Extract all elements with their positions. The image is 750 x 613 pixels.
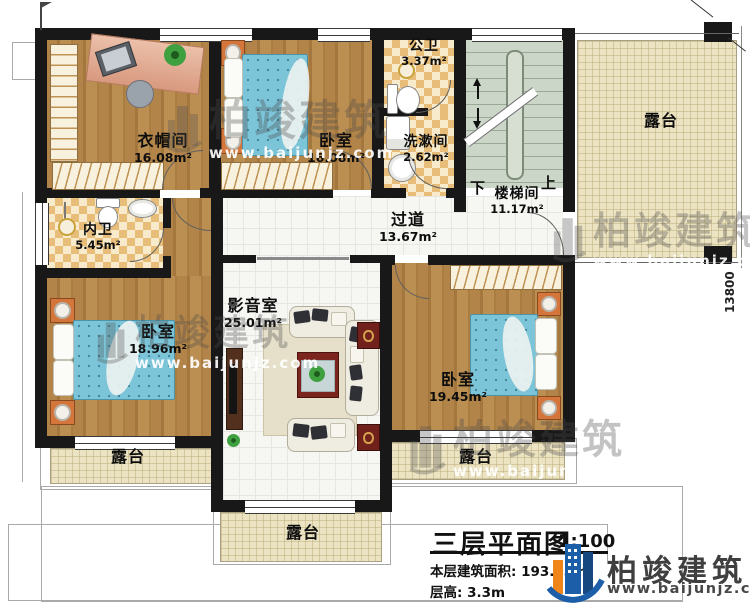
eave-line-b-v1 bbox=[8, 524, 9, 601]
terrace-right-topline-1 bbox=[575, 33, 739, 34]
window-top-bedroom bbox=[318, 28, 370, 42]
nightstand bbox=[537, 396, 561, 420]
closet-cloakroom-left bbox=[50, 44, 78, 162]
room-label-corridor: 过道 13.67m² bbox=[363, 211, 453, 245]
nightstand bbox=[537, 292, 561, 316]
terrace-right-sideline bbox=[741, 26, 742, 268]
sofa-cushion bbox=[311, 308, 328, 322]
room-label-bedroom-right: 卧室 19.45m² bbox=[413, 371, 503, 405]
pillow bbox=[53, 360, 74, 396]
sliding-door-media bbox=[257, 257, 349, 260]
room-label-bath-public: 公卫 3.37m² bbox=[379, 38, 469, 68]
dimension-right-value: 13800 bbox=[723, 265, 737, 313]
window-left-bath-inner bbox=[35, 203, 49, 265]
wall-right-upper bbox=[563, 28, 575, 212]
room-label-cloakroom: 衣帽间 16.08m² bbox=[118, 132, 208, 166]
room-label-bath-inner: 内卫 5.45m² bbox=[53, 222, 143, 252]
plant-desk bbox=[164, 44, 186, 66]
sofa-cushion bbox=[349, 364, 363, 381]
window-bottom-media bbox=[245, 500, 355, 514]
plant-media bbox=[227, 434, 240, 447]
room-label-bedroom-left: 卧室 18.96m² bbox=[113, 323, 203, 357]
pillow bbox=[224, 58, 243, 98]
wall-media-right bbox=[380, 255, 392, 512]
floor-height-text: 层高: 3.3m bbox=[430, 581, 505, 601]
terrace-label-bottom-right: 露台 bbox=[431, 448, 521, 467]
wall-corridor-top-3 bbox=[371, 188, 406, 198]
terrace-label-right: 露台 bbox=[616, 112, 706, 131]
level-marker-flag bbox=[41, 2, 52, 8]
tv-icon bbox=[229, 364, 237, 414]
wall-left-lower bbox=[35, 276, 47, 448]
column-terrace-tr bbox=[704, 22, 732, 42]
wall-stair-stub bbox=[454, 188, 466, 212]
closet-bedroom-right bbox=[450, 265, 562, 290]
pillow bbox=[53, 324, 74, 360]
closet-bedroom-top bbox=[221, 162, 333, 190]
plant-table bbox=[309, 366, 325, 382]
wall-bathinner-bottom bbox=[35, 268, 171, 278]
sofa-cushion bbox=[292, 423, 309, 438]
company-url-text: www.baijunjz.com bbox=[607, 581, 750, 597]
window-top-stairwell bbox=[472, 28, 562, 42]
window-bottom-bedroom-right bbox=[420, 430, 532, 444]
pillow bbox=[224, 98, 243, 138]
wall-media-left bbox=[211, 188, 223, 512]
pillow bbox=[535, 354, 557, 390]
wall-corridor-bot-b bbox=[428, 255, 575, 265]
company-logo-icon bbox=[545, 538, 605, 604]
speaker bbox=[357, 322, 380, 349]
terrace-label-bottom-center: 露台 bbox=[258, 524, 348, 543]
floor-terrace-right bbox=[577, 40, 737, 258]
sofa-cushion-light bbox=[331, 312, 347, 326]
speaker bbox=[357, 424, 380, 451]
room-label-washroom: 洗漱间 2.62m² bbox=[381, 134, 471, 164]
eave-line-left bbox=[22, 192, 23, 482]
wall-media-top-a bbox=[211, 255, 256, 263]
wall-div-cloak-bed bbox=[209, 28, 221, 188]
sofa-cushion bbox=[310, 425, 327, 440]
closet-cloakroom-bottom bbox=[52, 162, 164, 190]
nightstand bbox=[50, 298, 75, 323]
wall-corridor-bot-a bbox=[380, 255, 395, 265]
wall-bathinner-right-a bbox=[163, 198, 171, 228]
terrace-right-botline-1 bbox=[575, 262, 739, 263]
stair-arrow-down-stem bbox=[477, 108, 479, 121]
sofa-cushion bbox=[349, 385, 363, 401]
room-label-media-room: 影音室 25.01m² bbox=[208, 297, 298, 331]
pillow bbox=[535, 318, 557, 354]
sofa-cushion-light bbox=[330, 423, 346, 438]
stair-arrow-down-icon bbox=[473, 121, 481, 129]
floor-plan-canvas: 13800 bbox=[0, 0, 750, 613]
oval-sink bbox=[128, 199, 157, 218]
terrace-label-bottom-left: 露台 bbox=[83, 448, 173, 467]
wall-right-lower bbox=[563, 255, 575, 442]
corner-arrow-line-1 bbox=[691, 0, 714, 18]
office-chair bbox=[126, 80, 154, 108]
room-label-bedroom-top: 卧室 16.08m² bbox=[291, 132, 381, 166]
nightstand bbox=[50, 400, 75, 425]
stair-arrow-up-stem bbox=[477, 86, 479, 99]
room-label-stairwell: 楼梯间 11.17m² bbox=[477, 186, 557, 216]
stair-arrow-up-icon bbox=[473, 78, 481, 86]
